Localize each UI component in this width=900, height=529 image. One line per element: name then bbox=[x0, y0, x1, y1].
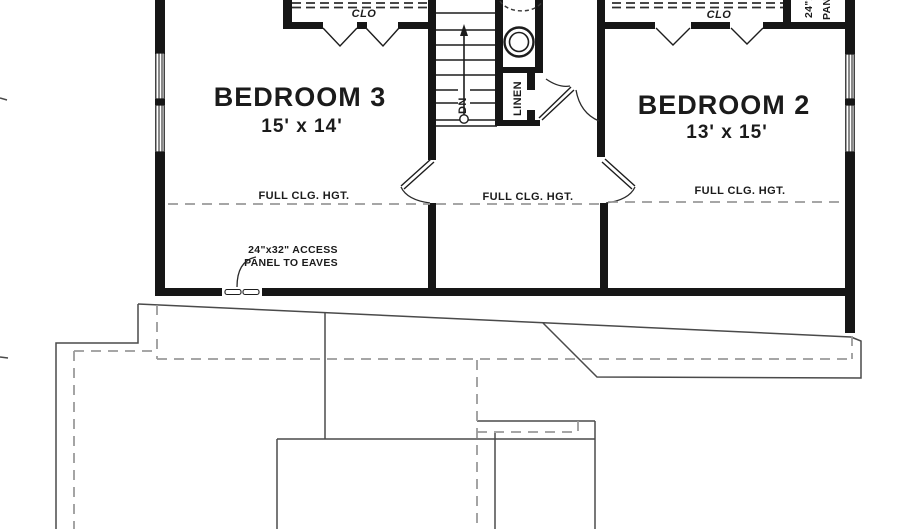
linen-closet-label: LINEN bbox=[512, 81, 524, 116]
floor-plan-svg: BEDROOM 3 15' x 14' BEDROOM 2 13' x 15' … bbox=[0, 0, 900, 529]
window-right-upper bbox=[846, 54, 854, 99]
window-left-lower bbox=[156, 105, 164, 152]
closet-right-label: CLO bbox=[707, 9, 732, 21]
bedroom-2-dimensions: 13' x 15' bbox=[686, 122, 767, 143]
bedroom-3-dimensions: 15' x 14' bbox=[261, 116, 342, 137]
closet-shelf-right bbox=[612, 3, 783, 8]
full-ceiling-height-label-right: FULL CLG. HGT. bbox=[695, 185, 786, 197]
bifold-doors-right-closet bbox=[656, 28, 763, 45]
access-panel-note-line2: PANEL TO EAVES bbox=[244, 257, 338, 269]
bedroom-2-label: BEDROOM 2 bbox=[638, 90, 811, 120]
interior-walls bbox=[283, 0, 845, 288]
lower-level-hidden-lines bbox=[74, 305, 852, 529]
bifold-doors-left-closet bbox=[323, 28, 399, 46]
eaves-panel-label-line2: PANEL TO EAVES bbox=[821, 0, 833, 20]
bedroom2-corner-door bbox=[602, 159, 635, 203]
floor-plan-canvas: BEDROOM 3 15' x 14' BEDROOM 2 13' x 15' … bbox=[0, 0, 900, 529]
full-ceiling-height-label-middle: FULL CLG. HGT. bbox=[483, 191, 574, 203]
window-left-upper bbox=[156, 53, 164, 99]
eaves-panel-label-line1: 24"x32" ACCESS bbox=[803, 0, 815, 18]
closet-shelf-left bbox=[292, 3, 428, 8]
roof-outline bbox=[56, 304, 861, 529]
toilet-icon bbox=[505, 28, 534, 57]
full-ceiling-height-label-left: FULL CLG. HGT. bbox=[259, 190, 350, 202]
edge-ticks bbox=[0, 98, 8, 358]
closet-left-label: CLO bbox=[352, 8, 377, 20]
linen-door bbox=[539, 79, 574, 120]
bedroom3-corner-door bbox=[401, 159, 434, 203]
bedroom2-hall-door bbox=[576, 90, 599, 121]
stairs-dn-label: DN bbox=[457, 97, 469, 114]
window-right-lower bbox=[846, 105, 854, 152]
stairs-newel-symbol bbox=[460, 115, 468, 123]
bedroom-3-label: BEDROOM 3 bbox=[214, 82, 387, 112]
exterior-walls bbox=[155, 0, 855, 333]
access-panel-note-line1: 24"x32" ACCESS bbox=[248, 244, 338, 256]
